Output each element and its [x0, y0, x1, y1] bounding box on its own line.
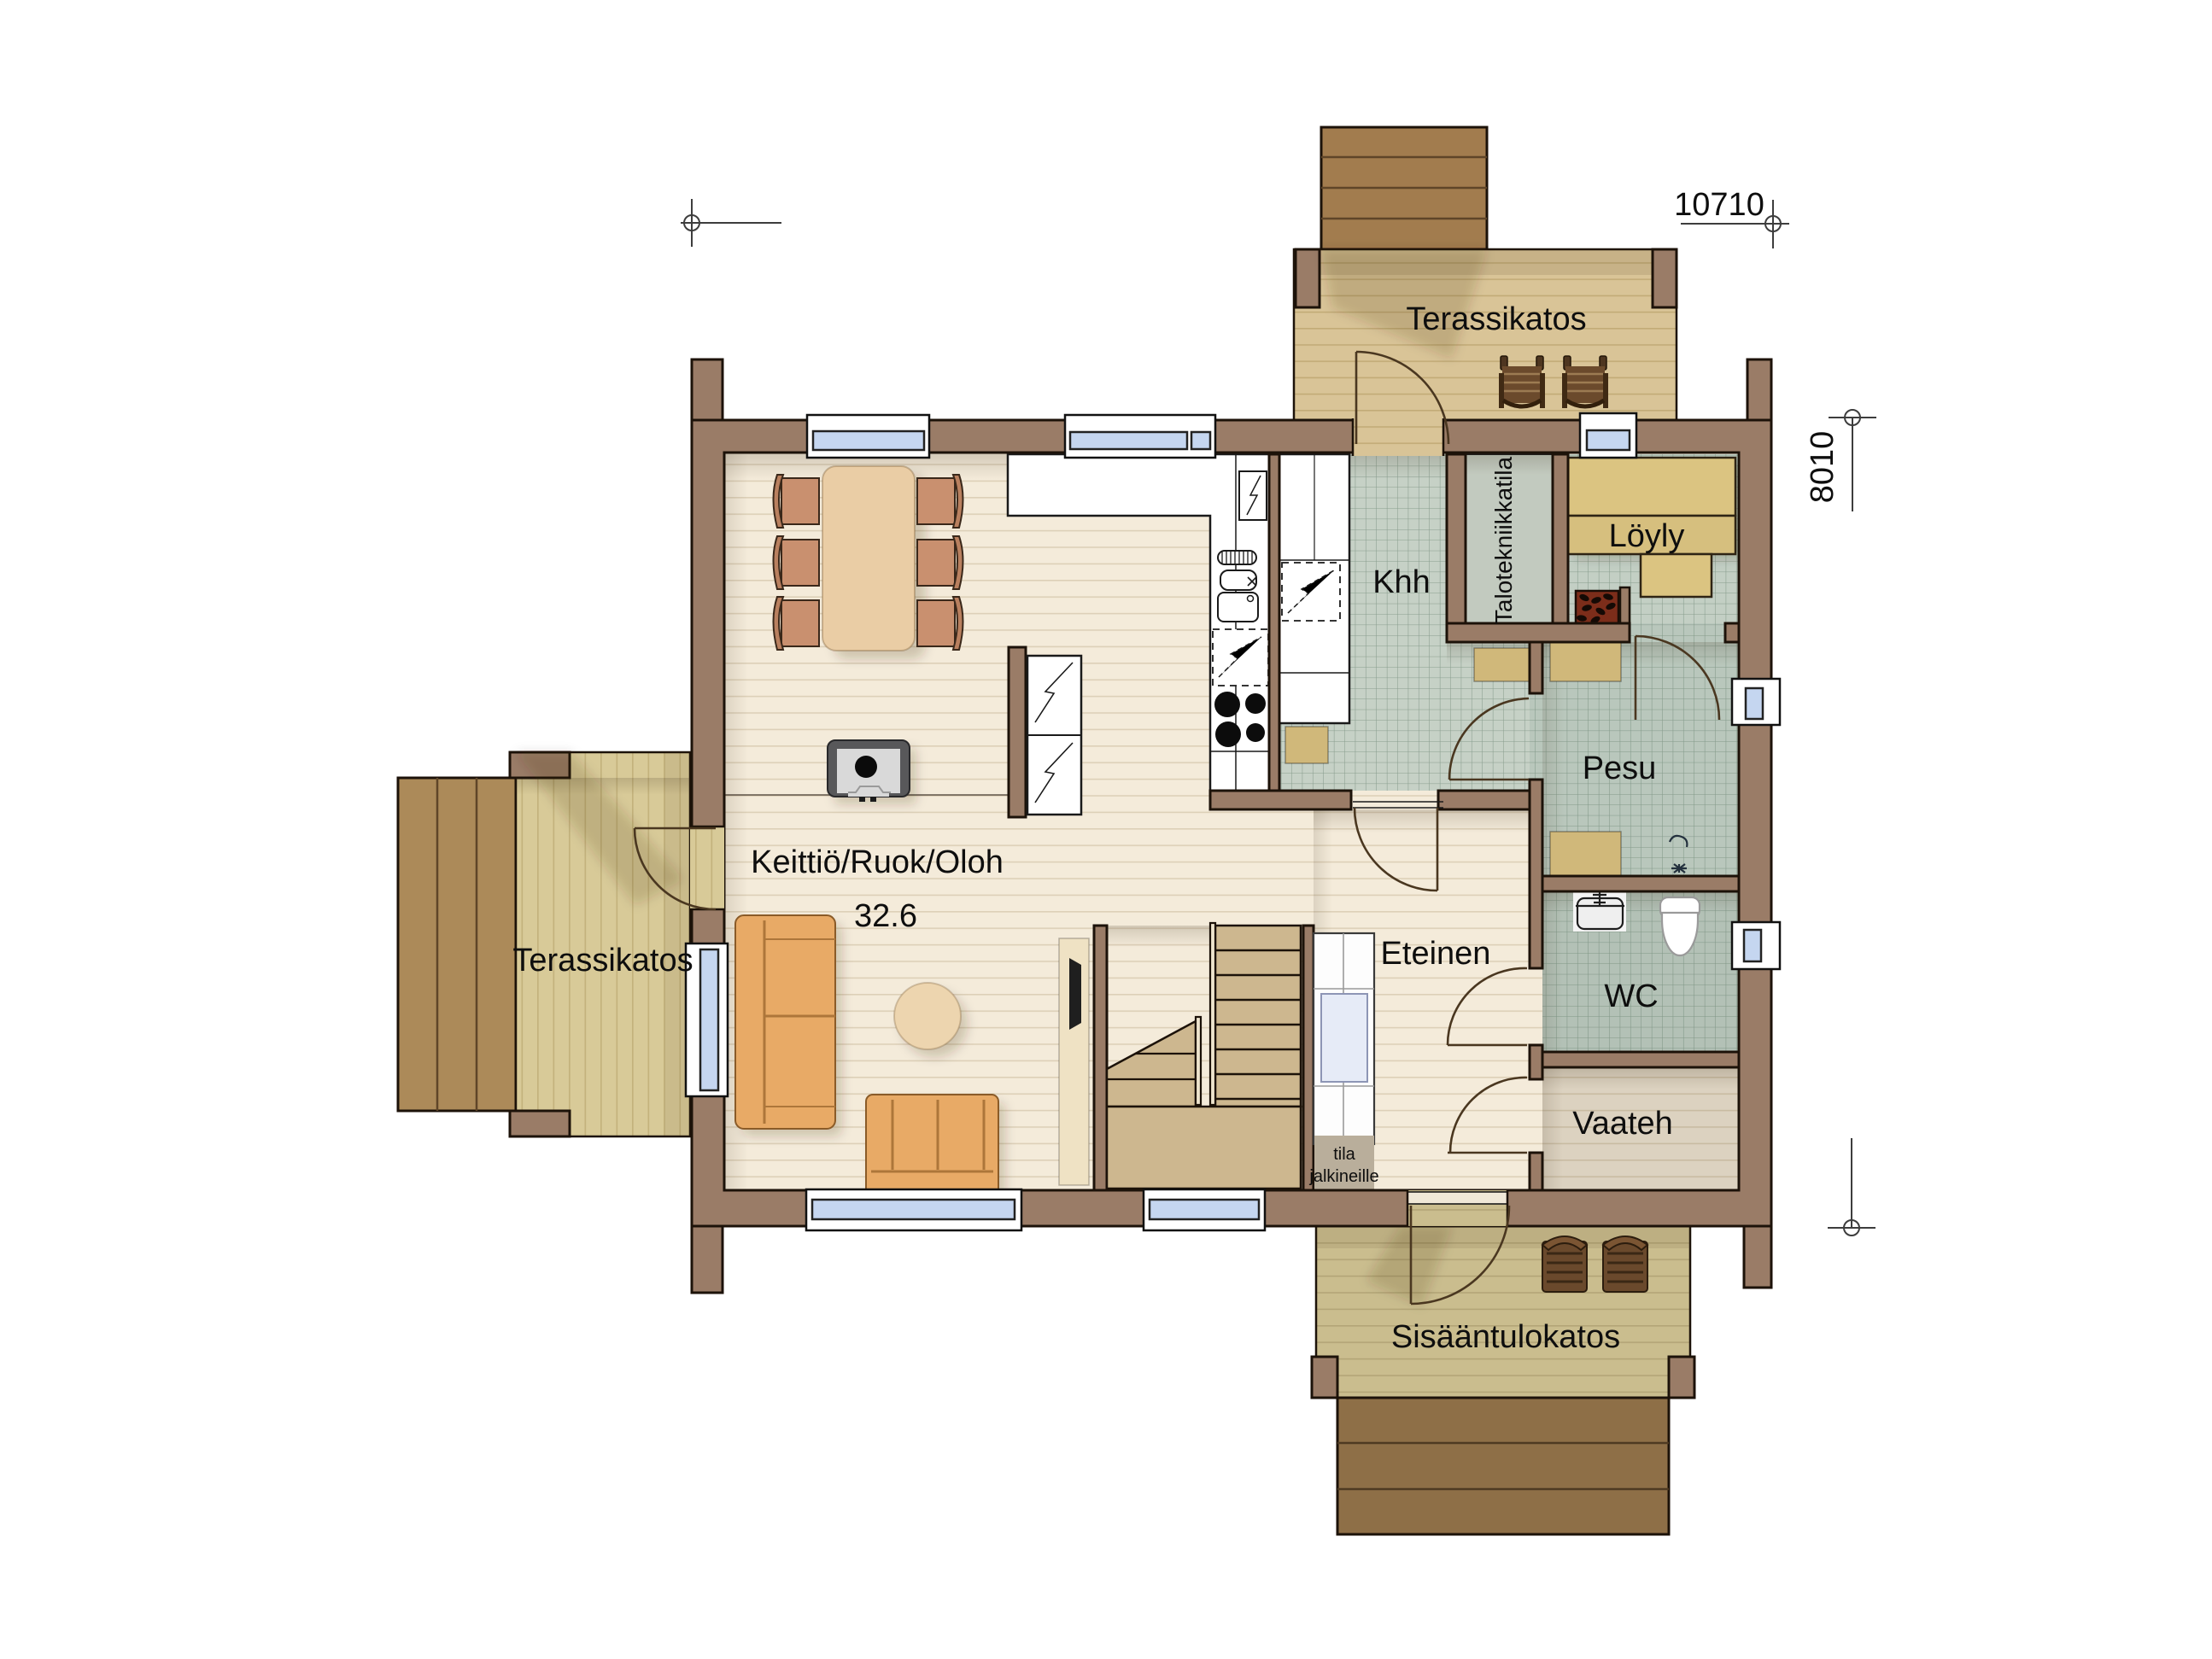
svg-text:Talotekniikkatila: Talotekniikkatila: [1490, 457, 1517, 625]
svg-text:tila: tila: [1333, 1145, 1355, 1164]
svg-text:Löyly: Löyly: [1609, 518, 1685, 554]
svg-text:Sisääntulokatos: Sisääntulokatos: [1391, 1319, 1620, 1355]
svg-text:WC: WC: [1604, 978, 1658, 1014]
svg-text:Keittiö/Ruok/Oloh: Keittiö/Ruok/Oloh: [751, 844, 1004, 880]
svg-text:Eteinen: Eteinen: [1381, 936, 1491, 972]
svg-text:Pesu: Pesu: [1583, 751, 1657, 786]
svg-text:Vaateh: Vaateh: [1572, 1106, 1673, 1142]
svg-text:Terassikatos: Terassikatos: [1406, 301, 1586, 337]
svg-text:8010: 8010: [1805, 431, 1840, 504]
svg-text:jalkineille: jalkineille: [1308, 1167, 1378, 1186]
svg-text:Khh: Khh: [1372, 564, 1431, 600]
svg-text:Terassikatos: Terassikatos: [512, 943, 693, 978]
svg-text:32.6: 32.6: [854, 898, 917, 934]
svg-text:10710: 10710: [1674, 187, 1764, 223]
